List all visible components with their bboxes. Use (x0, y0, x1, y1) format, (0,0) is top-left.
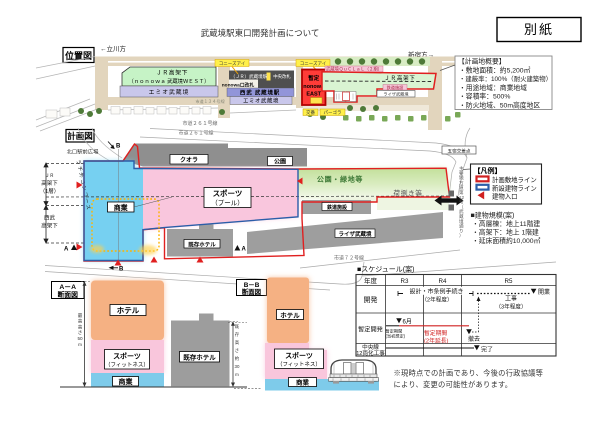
svg-text:市道２６１号線: 市道２６１号線 (182, 120, 217, 127)
svg-text:暫定期間: 暫定期間 (424, 329, 447, 337)
svg-text:・用途地域：商業地域: ・用途地域：商業地域 (459, 83, 527, 92)
svg-text:工事: 工事 (505, 295, 517, 303)
svg-text:既存ホテル: 既存ホテル (188, 240, 216, 248)
svg-text:高架下: 高架下 (41, 179, 58, 187)
svg-text:R4: R4 (439, 278, 447, 285)
svg-text:スポーツ: スポーツ (213, 188, 243, 198)
svg-text:完了: 完了 (481, 346, 493, 354)
svg-text:ＪＲ: ＪＲ (45, 173, 54, 178)
svg-text:ＪＲ高架下: ＪＲ高架下 (384, 74, 416, 82)
svg-text:A－A: A－A (59, 284, 76, 291)
svg-text:（2年程度）: （2年程度） (421, 296, 452, 304)
svg-text:12両化工事: 12両化工事 (356, 349, 385, 357)
svg-text:nonowa口改札: nonowa口改札 (222, 81, 255, 88)
svg-text:鉄道施設: 鉄道施設 (387, 84, 405, 91)
svg-text:・敷地面積：約5,200㎡: ・敷地面積：約5,200㎡ (459, 65, 531, 74)
svg-text:公園・緑地等: 公園・緑地等 (317, 175, 363, 184)
svg-text:撤去: 撤去 (468, 335, 480, 343)
svg-text:別紙: 別紙 (524, 22, 554, 37)
svg-text:西武 武蔵境駅: 西武 武蔵境駅 (240, 89, 280, 97)
svg-text:年度: 年度 (364, 276, 378, 285)
svg-text:B: B (119, 267, 124, 273)
svg-text:クオラ: クオラ (180, 156, 198, 164)
svg-text:スポーツ: スポーツ (113, 352, 141, 361)
svg-text:エミオ武蔵境: エミオ武蔵境 (243, 97, 279, 105)
svg-text:中央改札: 中央改札 (273, 73, 291, 80)
svg-text:により、変更の可能性があります。: により、変更の可能性があります。 (394, 380, 513, 389)
svg-text:エミオ武蔵境: エミオ武蔵境 (149, 88, 190, 96)
svg-text:（フィットネス）: （フィットネス） (105, 362, 149, 369)
svg-text:ＪＲ高架下: ＪＲ高架下 (156, 69, 188, 77)
svg-text:（ｎｏｎｏｗａ 武蔵境ＷＥＳＴ）: （ｎｏｎｏｗａ 武蔵境ＷＥＳＴ） (129, 77, 210, 85)
svg-text:（ＪＲ）武蔵境駅: （ＪＲ）武蔵境駅 (231, 73, 268, 80)
svg-text:コニーズアイ: コニーズアイ (219, 60, 246, 67)
svg-text:【凡例】: 【凡例】 (474, 166, 502, 175)
svg-text:ライザ武蔵境: ライザ武蔵境 (383, 91, 408, 98)
svg-text:■建物規模(案): ■建物規模(案) (471, 211, 515, 220)
svg-text:商業: 商業 (119, 377, 134, 386)
svg-text:武蔵境駅東口開発計画について: 武蔵境駅東口開発計画について (201, 28, 320, 38)
svg-text:断面図: 断面図 (242, 287, 261, 296)
svg-text:高架下: 高架下 (41, 222, 58, 230)
svg-text:北口駅前広場: 北口駅前広場 (67, 148, 99, 156)
svg-text:（1層）: （1層） (40, 188, 60, 195)
svg-text:ホテル: ホテル (280, 311, 300, 319)
svg-text:開業: 開業 (538, 288, 550, 296)
svg-text:公園: 公園 (274, 158, 286, 166)
svg-text:ホテル: ホテル (117, 306, 140, 315)
svg-text:(2年延長): (2年延長) (424, 337, 449, 345)
svg-text:五宿交差点: 五宿交差点 (448, 147, 471, 154)
svg-text:商業: 商業 (296, 378, 310, 387)
svg-text:・容積率：500%: ・容積率：500% (459, 92, 510, 101)
svg-text:←立川方: ←立川方 (100, 44, 127, 53)
svg-text:設計・市条例手続き: 設計・市条例手続き (409, 288, 463, 296)
svg-text:B: B (116, 144, 121, 150)
svg-text:商業: 商業 (114, 203, 129, 212)
svg-text:B－B: B－B (244, 282, 260, 289)
svg-text:スポーツ: スポーツ (285, 351, 313, 360)
svg-text:交番: 交番 (306, 109, 315, 116)
svg-text:A: A (64, 247, 69, 253)
svg-text:・高層棟：地上11階建: ・高層棟：地上11階建 (472, 219, 540, 228)
svg-text:荷捌き等: 荷捌き等 (393, 189, 422, 198)
svg-text:鉄道施設: 鉄道施設 (327, 204, 348, 211)
svg-text:市道７２号線: 市道７２号線 (334, 255, 364, 262)
svg-text:R5: R5 (505, 278, 513, 285)
svg-text:市道１３４号線: 市道１３４号線 (195, 98, 225, 105)
svg-text:EAST: EAST (306, 92, 321, 98)
svg-text:コニーズアイ: コニーズアイ (300, 60, 327, 67)
svg-text:・延床面積約10,000㎡: ・延床面積約10,000㎡ (472, 236, 541, 245)
svg-text:断面図: 断面図 (58, 290, 79, 299)
svg-text:（3年程度）: （3年程度） (495, 302, 526, 310)
svg-text:暫定開発: 暫定開発 (358, 326, 384, 334)
svg-text:既存ホテル: 既存ホテル (183, 353, 216, 362)
svg-text:西武: 西武 (44, 214, 56, 222)
svg-text:パーゴラ: パーゴラ (324, 109, 342, 116)
svg-text:A: A (242, 247, 247, 253)
svg-text:位置図: 位置図 (65, 50, 92, 61)
svg-text:建物入口: 建物入口 (492, 191, 518, 200)
svg-text:開発: 開発 (364, 295, 378, 304)
svg-text:・建蔽率：100%（耐火建築物）: ・建蔽率：100%（耐火建築物） (459, 74, 552, 83)
svg-text:中央線: 中央線 (362, 343, 379, 351)
svg-text:R3: R3 (401, 278, 409, 285)
svg-text:(当初想定): (当初想定) (386, 333, 406, 340)
svg-text:【計画地概要】: 【計画地概要】 (458, 57, 506, 66)
svg-text:（プール）: （プール） (211, 199, 244, 207)
svg-text:■スケジュール(案): ■スケジュール(案) (357, 265, 414, 274)
svg-text:新設建物ライン: 新設建物ライン (492, 183, 537, 192)
svg-text:・高架下：地上 1階建: ・高架下：地上 1階建 (472, 227, 539, 236)
svg-text:ライザ武蔵境: ライザ武蔵境 (338, 230, 372, 238)
svg-text:・防火地域、50m高度地区: ・防火地域、50m高度地区 (459, 101, 540, 110)
svg-text:（フィットネス）: （フィットネス） (277, 361, 321, 368)
svg-text:※現時点での計画であり、今後の行政協議等: ※現時点での計画であり、今後の行政協議等 (394, 369, 544, 378)
svg-text:計画敷地ライン: 計画敷地ライン (492, 175, 537, 184)
svg-text:6月: 6月 (403, 318, 412, 325)
svg-text:暫定: 暫定 (308, 74, 320, 82)
